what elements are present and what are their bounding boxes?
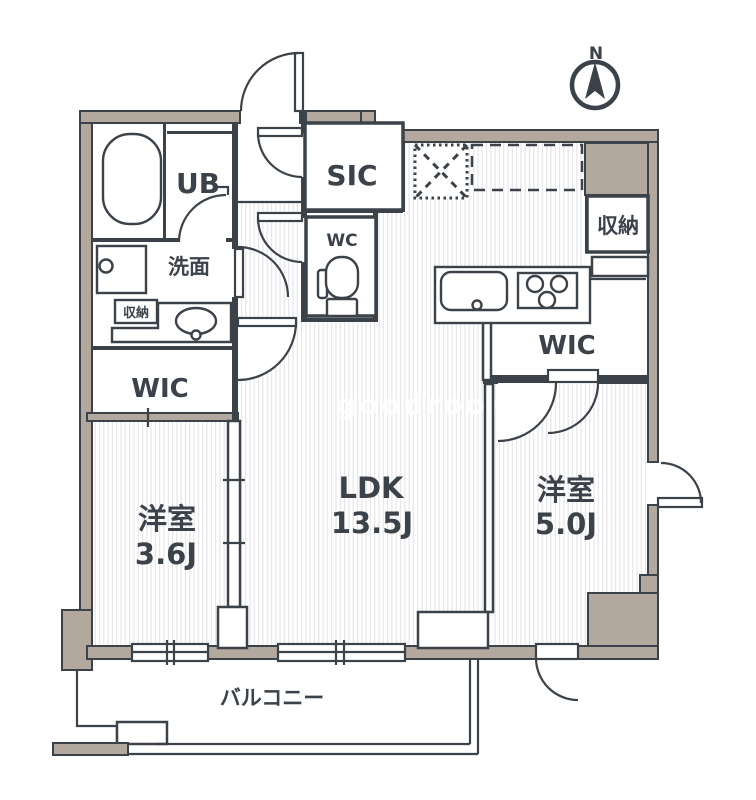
floorplan: goodroom bbox=[0, 0, 756, 800]
door-pocket-bedroom-left bbox=[218, 607, 247, 648]
pillar-box-ldk bbox=[418, 612, 488, 648]
room-label-wc: WC bbox=[326, 231, 357, 251]
room-label-wic-left: WIC bbox=[131, 374, 188, 404]
compass-north-icon: N bbox=[572, 44, 618, 108]
refrigerator-space-icon bbox=[415, 145, 467, 198]
bedroom-right-exterior-door-icon bbox=[536, 644, 578, 700]
wall-mass-top-right bbox=[585, 143, 648, 195]
wall-wic-left-bottom bbox=[87, 413, 238, 421]
wall-pillar-left bbox=[62, 610, 92, 670]
room-label-ldk: LDK bbox=[338, 471, 405, 505]
balcony-step bbox=[117, 722, 167, 744]
window-ldk-icon bbox=[278, 640, 405, 665]
wall-ldk-bedroom-right bbox=[485, 384, 493, 612]
shelf-wic-right bbox=[592, 257, 648, 276]
entrance-door-icon bbox=[241, 53, 303, 111]
service-door-icon bbox=[658, 463, 702, 507]
sic-door-icon bbox=[258, 128, 302, 177]
bathtub-icon bbox=[103, 134, 161, 224]
room-label-storage-right: 収納 bbox=[597, 214, 639, 238]
room-label-washroom: 洗面 bbox=[168, 255, 210, 279]
compass-n-label: N bbox=[589, 44, 603, 64]
room-label-bedroom-left: 洋室 bbox=[138, 502, 196, 536]
room-label-wic-right: WIC bbox=[538, 331, 595, 361]
room-size-ldk: 13.5J bbox=[331, 506, 413, 540]
room-label-unit-bath: UB bbox=[176, 167, 220, 200]
room-size-bedroom-left: 3.6J bbox=[135, 537, 197, 571]
room-label-balcony: バルコニー bbox=[220, 686, 325, 710]
room-label-bedroom-right: 洋室 bbox=[537, 473, 595, 507]
wall-bedroom-left-ldk bbox=[228, 421, 240, 607]
room-label-storage-small: 収納 bbox=[123, 305, 149, 321]
room-label-sic: SIC bbox=[326, 159, 377, 192]
floorplan-drawing: goodroom bbox=[0, 0, 756, 800]
balcony-sill bbox=[53, 743, 128, 755]
room-size-bedroom-right: 5.0J bbox=[535, 507, 597, 541]
kitchen-counter bbox=[435, 267, 590, 323]
window-bedroom-left-icon bbox=[132, 640, 208, 665]
wall-ldk-wic-right bbox=[483, 318, 491, 380]
